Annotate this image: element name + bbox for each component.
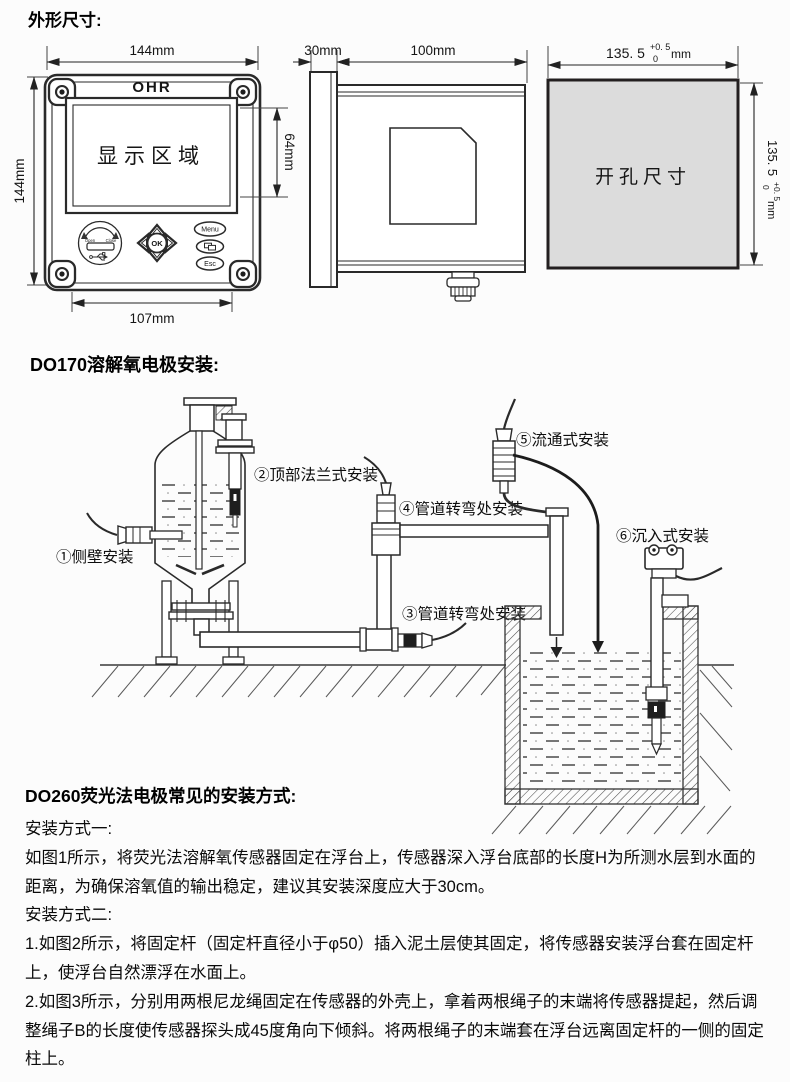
dim-keypad-width: 107mm xyxy=(129,311,174,326)
esc-label: Esc xyxy=(204,261,216,268)
cutout-width-value: 135. 5 xyxy=(606,45,645,61)
side-view-drawing: 30mm 100mm xyxy=(293,43,527,301)
usb-close-label: Close xyxy=(106,238,117,243)
front-view-drawing: 144mm 144mm xyxy=(12,43,297,326)
method2-step2: 2.如图3所示，分别用两根尼龙绳固定在传感器的外壳上，拿着两根绳子的末端将传感器… xyxy=(25,988,770,1074)
cutout-height-tol-upper: +0. 5 xyxy=(772,182,782,201)
display-area-label: 显示区域 xyxy=(97,144,205,168)
down-pipe xyxy=(546,508,568,658)
dim-display-height: 64mm xyxy=(282,133,297,171)
method2-heading: 安装方式二: xyxy=(25,901,770,930)
side-label-plate xyxy=(390,128,476,224)
stirrer-shaft xyxy=(196,431,202,569)
ok-label: OK xyxy=(151,239,163,248)
do260-section-title: DO260荧光法电极常见的安装方式: xyxy=(25,783,770,808)
cutout-height-value: 135. 5 xyxy=(765,140,780,176)
method2-step1: 1.如图2所示，将固定杆（固定杆直径小于φ50）插入泥土层使其固定，将传感器安装… xyxy=(25,930,770,988)
method1-heading: 安装方式一: xyxy=(25,815,770,844)
usb-port-drawing: Open Close xyxy=(79,222,122,265)
label-top-flange-install: ②顶部法兰式安装 xyxy=(254,466,378,484)
cutout-height-unit: mm xyxy=(765,201,777,219)
do170-section-title: DO170溶解氧电极安装: xyxy=(30,351,219,377)
dim-front-height: 144mm xyxy=(12,158,27,203)
dim-bezel-depth: 30mm xyxy=(304,43,342,58)
cutout-label: 开孔尺寸 xyxy=(595,166,691,188)
dim-body-depth: 100mm xyxy=(410,43,455,58)
sensor-pipe-bend-lower xyxy=(360,623,466,651)
menu-label: Menu xyxy=(201,227,219,234)
cutout-height-tol-lower: 0 xyxy=(761,185,771,190)
method1-paragraph: 如图1所示，将荧光法溶解氧传感器固定在浮台上，传感器深入浮台底部的长度H为所测水… xyxy=(25,844,770,902)
cable-gland xyxy=(447,272,479,301)
horizontal-pipe xyxy=(400,525,548,537)
cutout-height-dim: 135. 5 +0. 5 0 mm xyxy=(761,140,782,219)
reaction-tank xyxy=(155,398,370,664)
label-pipe-bend-install-upper: ④管道转弯处安装 xyxy=(399,500,523,518)
function-buttons: Menu Esc xyxy=(195,222,226,270)
manual-page: 外形尺寸: 144mm 144mm xyxy=(0,0,790,1082)
cutout-width-unit: mm xyxy=(671,47,691,61)
outlet-pipe xyxy=(200,632,370,647)
label-side-wall-install: ①侧壁安装 xyxy=(56,548,134,566)
cutout-width-tol-lower: 0 xyxy=(653,54,658,64)
cutout-width-tol-upper: +0. 5 xyxy=(650,42,670,52)
dim-front-width: 144mm xyxy=(129,43,174,58)
do260-section: DO260荧光法电极常见的安装方式: 安装方式一: 如图1所示，将荧光法溶解氧传… xyxy=(25,783,770,1074)
usb-open-label: Open xyxy=(85,238,96,243)
brand-logo: OHR xyxy=(132,79,171,96)
cutout-drawing: 135. 5 +0. 5 0 mm 开孔尺寸 135. 5 +0. 5 0 mm xyxy=(548,42,782,268)
mount-bracket xyxy=(662,595,688,607)
do170-installation-diagram: ①侧壁安装 ②顶部法兰式安装 ④管道转弯处安装 xyxy=(0,385,790,845)
outline-drawings: 144mm 144mm xyxy=(0,0,790,345)
label-submerged-install: ⑥沉入式安装 xyxy=(616,527,709,545)
label-flow-through-install: ⑤流通式安装 xyxy=(516,431,609,449)
ground-left xyxy=(92,665,506,697)
